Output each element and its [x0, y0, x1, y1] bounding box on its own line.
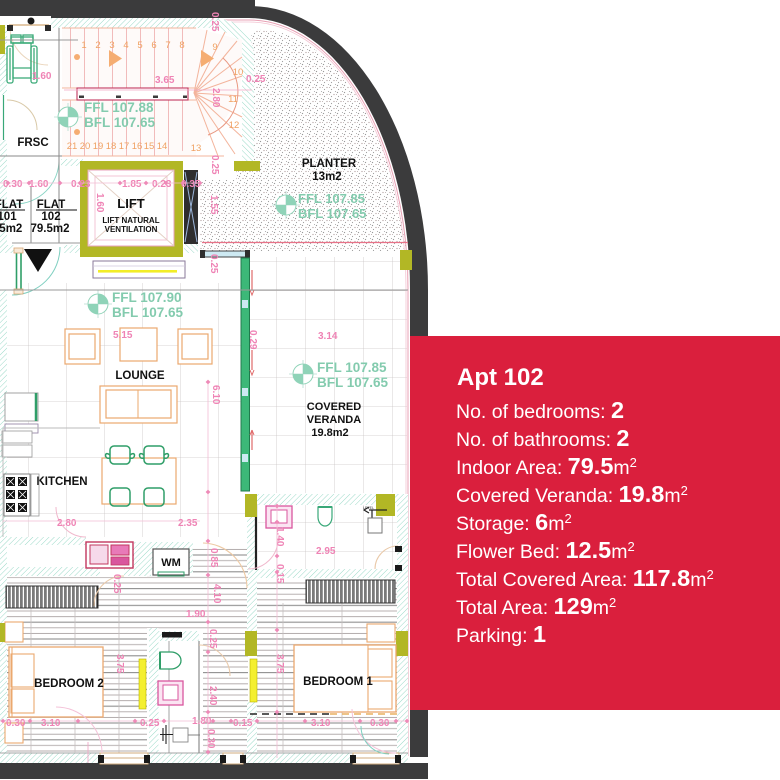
- svg-text:BEDROOM 1: BEDROOM 1: [303, 676, 373, 688]
- svg-text:17: 17: [119, 141, 130, 152]
- svg-text:No. of bathrooms: 2: No. of bathrooms: 2: [456, 425, 630, 451]
- svg-text:0.30: 0.30: [3, 179, 23, 190]
- svg-text:21: 21: [67, 141, 78, 152]
- svg-text:5: 5: [137, 40, 142, 51]
- svg-text:0.25: 0.25: [208, 254, 219, 274]
- svg-text:Apt 102: Apt 102: [457, 364, 544, 391]
- svg-text:FFL 107.85: FFL 107.85: [317, 360, 387, 375]
- svg-text:12: 12: [229, 120, 240, 131]
- svg-text:Storage: 6m2: Storage: 6m2: [456, 509, 572, 535]
- svg-text:1.60: 1.60: [32, 71, 52, 82]
- svg-text:9: 9: [212, 42, 217, 53]
- svg-text:0.15: 0.15: [233, 718, 253, 729]
- svg-text:FLAT: FLAT: [37, 199, 66, 211]
- svg-text:2.40: 2.40: [207, 686, 218, 706]
- svg-text:3.10: 3.10: [311, 718, 331, 729]
- svg-text:Parking: 1: Parking: 1: [456, 621, 546, 647]
- svg-text:3.10: 3.10: [41, 718, 61, 729]
- svg-text:3.14: 3.14: [318, 331, 338, 342]
- svg-text:2: 2: [95, 40, 100, 51]
- svg-text:FFL 107.85: FFL 107.85: [298, 191, 365, 206]
- svg-text:PLANTER: PLANTER: [302, 158, 357, 170]
- svg-text:3.75: 3.75: [114, 654, 125, 674]
- svg-text:2.80: 2.80: [210, 88, 221, 108]
- svg-text:7: 7: [165, 40, 170, 51]
- svg-text:16: 16: [132, 141, 143, 152]
- svg-text:Indoor Area: 79.5m2: Indoor Area: 79.5m2: [456, 453, 637, 479]
- svg-text:FLAT: FLAT: [0, 199, 23, 211]
- svg-text:3.75: 3.75: [274, 654, 285, 674]
- svg-text:0.23: 0.23: [152, 179, 172, 190]
- svg-text:Total Area: 129m2: Total Area: 129m2: [456, 593, 616, 619]
- svg-text:79.5m2: 79.5m2: [30, 223, 69, 235]
- svg-text:Covered Veranda: 19.8m2: Covered Veranda: 19.8m2: [456, 481, 688, 507]
- svg-text:Total Covered Area: 117.8m2: Total Covered Area: 117.8m2: [456, 565, 714, 591]
- svg-text:Flower Bed: 12.5m2: Flower Bed: 12.5m2: [456, 537, 635, 563]
- svg-text:2.35: 2.35: [178, 518, 198, 529]
- svg-text:0.25: 0.25: [209, 155, 220, 175]
- svg-text:0.85: 0.85: [208, 548, 219, 568]
- svg-text:0.29: 0.29: [247, 330, 258, 350]
- svg-text:14: 14: [157, 141, 168, 152]
- svg-text:101: 101: [0, 211, 17, 223]
- svg-text:18: 18: [106, 141, 117, 152]
- svg-text:13: 13: [191, 143, 202, 154]
- svg-text:6: 6: [151, 40, 156, 51]
- svg-text:0.30: 0.30: [205, 729, 216, 749]
- svg-text:19: 19: [93, 141, 104, 152]
- svg-text:0.35: 0.35: [181, 179, 201, 190]
- svg-text:COVERED: COVERED: [307, 401, 361, 413]
- svg-text:VERANDA: VERANDA: [307, 414, 361, 426]
- svg-text:1.85: 1.85: [122, 179, 142, 190]
- svg-text:LOUNGE: LOUNGE: [115, 370, 165, 382]
- svg-text:3.65: 3.65: [155, 75, 175, 86]
- svg-text:LIFT NATURAL: LIFT NATURAL: [102, 216, 159, 225]
- svg-text:0.30: 0.30: [370, 718, 390, 729]
- svg-text:VENTILATION: VENTILATION: [105, 225, 158, 234]
- svg-text:1.60: 1.60: [29, 179, 49, 190]
- svg-text:5.15: 5.15: [113, 330, 133, 341]
- svg-text:1.90: 1.90: [186, 609, 206, 620]
- svg-text:BFL 107.65: BFL 107.65: [112, 305, 184, 320]
- svg-text:FFL 107.90: FFL 107.90: [112, 290, 182, 305]
- svg-text:BFL 107.65: BFL 107.65: [317, 375, 389, 390]
- svg-text:15: 15: [144, 141, 155, 152]
- svg-text:0.25: 0.25: [207, 629, 218, 649]
- svg-text:102: 102: [41, 211, 60, 223]
- svg-text:0.15: 0.15: [274, 564, 285, 584]
- svg-text:10: 10: [233, 67, 244, 78]
- svg-text:LIFT: LIFT: [117, 196, 144, 211]
- svg-text:11: 11: [228, 94, 238, 105]
- svg-text:0.23: 0.23: [71, 179, 91, 190]
- svg-text:0.25: 0.25: [209, 12, 220, 32]
- svg-text:WM: WM: [161, 557, 181, 569]
- svg-text:BFL 107.65: BFL 107.65: [84, 115, 156, 130]
- svg-text:2.95: 2.95: [316, 546, 336, 557]
- svg-text:KITCHEN: KITCHEN: [36, 476, 87, 488]
- svg-text:No. of bedrooms: 2: No. of bedrooms: 2: [456, 397, 624, 423]
- svg-text:BEDROOM 2: BEDROOM 2: [34, 678, 104, 690]
- svg-text:6.10: 6.10: [210, 385, 221, 405]
- svg-text:1.60: 1.60: [94, 193, 105, 213]
- svg-text:1.55: 1.55: [208, 195, 219, 215]
- svg-text:3: 3: [109, 40, 114, 51]
- svg-text:9.5m2: 9.5m2: [0, 223, 22, 235]
- svg-text:1.80: 1.80: [192, 716, 212, 727]
- svg-text:4: 4: [123, 40, 128, 51]
- svg-text:19.8m2: 19.8m2: [311, 427, 348, 439]
- svg-text:1: 1: [81, 40, 86, 51]
- svg-text:0.25: 0.25: [140, 718, 160, 729]
- svg-text:4.10: 4.10: [211, 584, 222, 604]
- svg-text:1.40: 1.40: [274, 527, 285, 547]
- svg-text:FFL 107.88: FFL 107.88: [84, 100, 154, 115]
- svg-text:BFL 107.65: BFL 107.65: [298, 206, 366, 221]
- svg-text:0.25: 0.25: [246, 74, 266, 85]
- svg-text:LEVEL: LEVEL: [363, 506, 374, 510]
- svg-text:20: 20: [80, 141, 91, 152]
- svg-text:FRSC: FRSC: [17, 137, 48, 149]
- svg-text:0.25: 0.25: [111, 574, 122, 594]
- svg-text:2.80: 2.80: [57, 518, 77, 529]
- svg-text:0.30: 0.30: [6, 718, 26, 729]
- svg-text:13m2: 13m2: [312, 171, 341, 183]
- svg-text:8: 8: [179, 40, 184, 51]
